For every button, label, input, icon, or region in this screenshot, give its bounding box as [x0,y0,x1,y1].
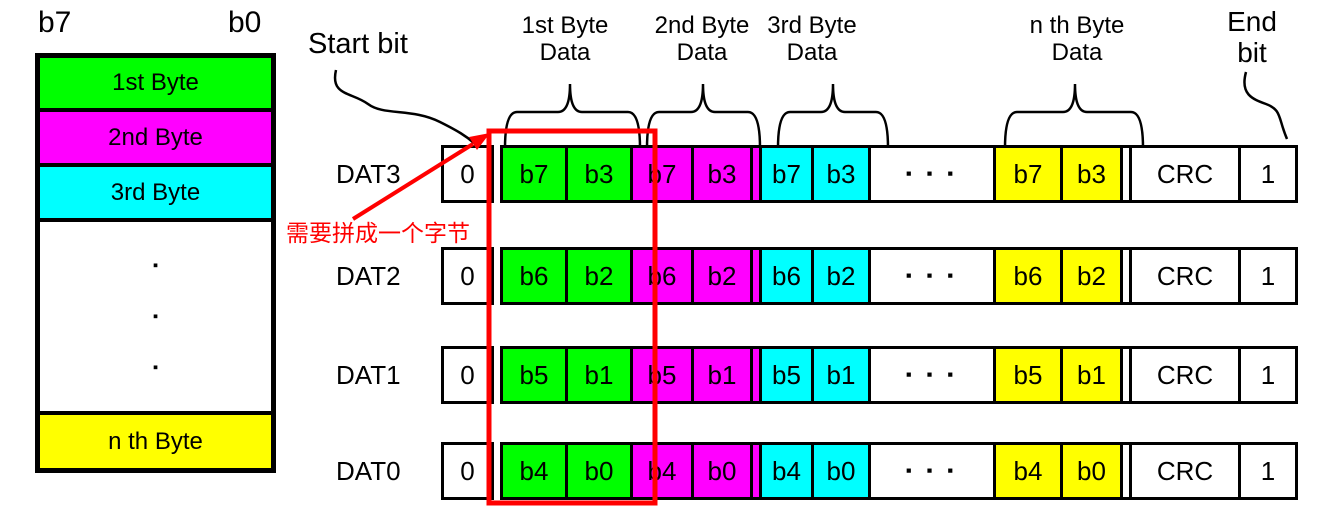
bit-cell: b7 [630,145,694,203]
byte-group-label-line2: Data [655,39,750,66]
start-bit-connector [335,70,474,143]
end-bit-cell: 1 [1238,442,1298,500]
byte-stack-row-3rd: 3rd Byte [40,167,271,222]
start-bit-label: Start bit [308,28,408,61]
bit-cell: b7 [993,145,1063,203]
bit-cell: b4 [500,442,568,500]
bit-cell: b5 [630,346,694,404]
end-bit-cell: 1 [1238,346,1298,404]
annotation-text: 需要拼成一个字节 [286,214,470,248]
byte-group-label-nth: n th Byte Data [1030,12,1125,66]
bit-cell: b1 [811,346,871,404]
bus-row-dat0: DAT0 0 b4 b0 b4 b0 b4 b0 ▪ ▪ ▪ b4 b0 CRC… [336,442,1298,500]
bit-cell: b5 [759,346,814,404]
start-bit-cell: 0 [441,346,494,404]
bit-cell: b6 [993,247,1063,305]
byte-group-label-2nd: 2nd Byte Data [655,12,750,66]
bus-row-dat2: DAT2 0 b6 b2 b6 b2 b6 b2 ▪ ▪ ▪ b6 b2 CRC… [336,247,1298,305]
bit-cell: b0 [811,442,871,500]
crc-cell: CRC [1129,145,1241,203]
bit-cell: b6 [630,247,694,305]
dot-icon: ▪ [153,360,158,375]
b0-label: b0 [228,6,261,40]
brace-nth-byte [1005,84,1143,148]
bit-cell: b3 [691,145,753,203]
bit-cell: b7 [759,145,814,203]
ellipsis-cell: ▪ ▪ ▪ [868,247,996,305]
sd-4bit-bus-diagram: b7 b0 1st Byte 2nd Byte 3rd Byte ▪ ▪ ▪ n… [0,0,1338,520]
bit-cell: b4 [630,442,694,500]
dot-icon: ▪ [153,309,158,324]
bit-cell: b6 [759,247,814,305]
row-label: DAT1 [336,346,408,404]
brace-2nd-byte [647,84,760,148]
bit-cell: b5 [500,346,568,404]
byte-stack-row-1st: 1st Byte [40,58,271,112]
brace-1st-byte [505,84,640,148]
bit-cell: b5 [993,346,1063,404]
byte-group-label-1st: 1st Byte Data [522,12,609,66]
byte-stack-row-nth: n th Byte [40,411,271,468]
byte-stack-row-2nd: 2nd Byte [40,112,271,167]
row-label: DAT0 [336,442,408,500]
bit-cell: b2 [811,247,871,305]
byte-stack-box: 1st Byte 2nd Byte 3rd Byte ▪ ▪ ▪ n th By… [35,53,276,473]
bus-row-dat3: DAT3 0 b7 b3 b7 b3 b7 b3 ▪ ▪ ▪ b7 b3 CRC… [336,145,1298,203]
bit-cell: b1 [691,346,753,404]
crc-cell: CRC [1129,346,1241,404]
row-label: DAT2 [336,247,408,305]
byte-group-label-line1: 1st Byte [522,12,609,39]
byte-stack-ellipsis: ▪ ▪ ▪ [40,222,271,411]
bit-cell: b3 [811,145,871,203]
start-bit-cell: 0 [441,442,494,500]
byte-group-label-line1: 2nd Byte [655,12,750,39]
ellipsis-cell: ▪ ▪ ▪ [868,442,996,500]
end-bit-label-line1: End [1227,6,1277,37]
bit-cell: b7 [500,145,568,203]
ellipsis-cell: ▪ ▪ ▪ [868,145,996,203]
byte-group-label-3rd: 3rd Byte Data [767,12,856,66]
start-bit-cell: 0 [441,145,494,203]
bit-cell: b2 [691,247,753,305]
end-bit-cell: 1 [1238,145,1298,203]
row-label: DAT3 [336,145,408,203]
byte-group-label-line1: n th Byte [1030,12,1125,39]
byte-group-label-line2: Data [767,39,856,66]
bit-cell: b0 [691,442,753,500]
bit-cell: b3 [565,145,633,203]
bit-cell: b4 [993,442,1063,500]
crc-cell: CRC [1129,247,1241,305]
bit-cell: b0 [565,442,633,500]
byte-group-label-line1: 3rd Byte [767,12,856,39]
end-bit-label: End bit [1227,6,1277,68]
b7-label: b7 [38,6,71,40]
dot-icon: ▪ [153,258,158,273]
crc-cell: CRC [1129,442,1241,500]
end-bit-label-line2: bit [1227,37,1277,68]
start-bit-cell: 0 [441,247,494,305]
bit-cell: b2 [1060,247,1123,305]
ellipsis-cell: ▪ ▪ ▪ [868,346,996,404]
byte-group-label-line2: Data [522,39,609,66]
bit-cell: b1 [1060,346,1123,404]
bit-cell: b4 [759,442,814,500]
bit-cell: b2 [565,247,633,305]
bit-cell: b3 [1060,145,1123,203]
bus-row-dat1: DAT1 0 b5 b1 b5 b1 b5 b1 ▪ ▪ ▪ b5 b1 CRC… [336,346,1298,404]
bit-cell: b0 [1060,442,1123,500]
byte-group-label-line2: Data [1030,39,1125,66]
bit-cell: b1 [565,346,633,404]
bit-cell: b6 [500,247,568,305]
brace-3rd-byte [778,84,888,148]
end-bit-connector [1244,72,1287,139]
end-bit-cell: 1 [1238,247,1298,305]
